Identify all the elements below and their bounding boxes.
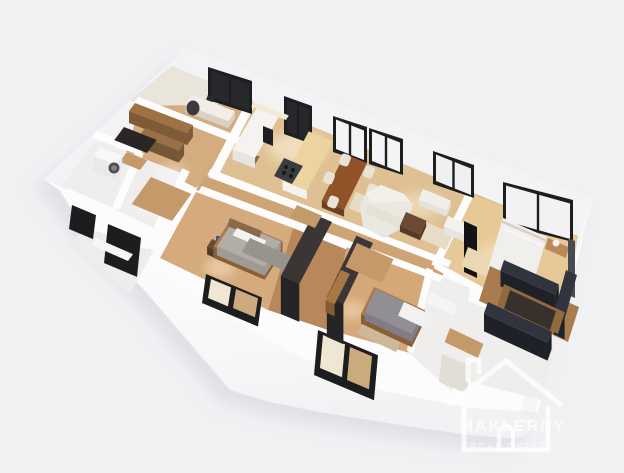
svg-text:MAKLERNY: MAKLERNY xyxy=(460,418,567,435)
svg-text:REAL ESTATE: REAL ESTATE xyxy=(470,442,556,451)
